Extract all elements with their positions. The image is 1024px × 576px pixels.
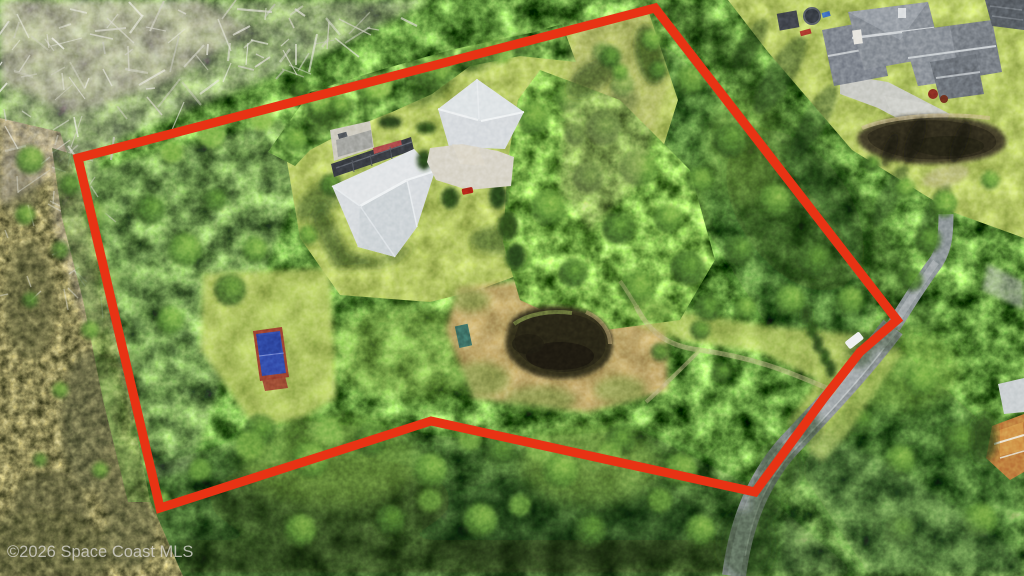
svg-text:©2026 Space Coast MLS: ©2026 Space Coast MLS xyxy=(7,543,193,561)
